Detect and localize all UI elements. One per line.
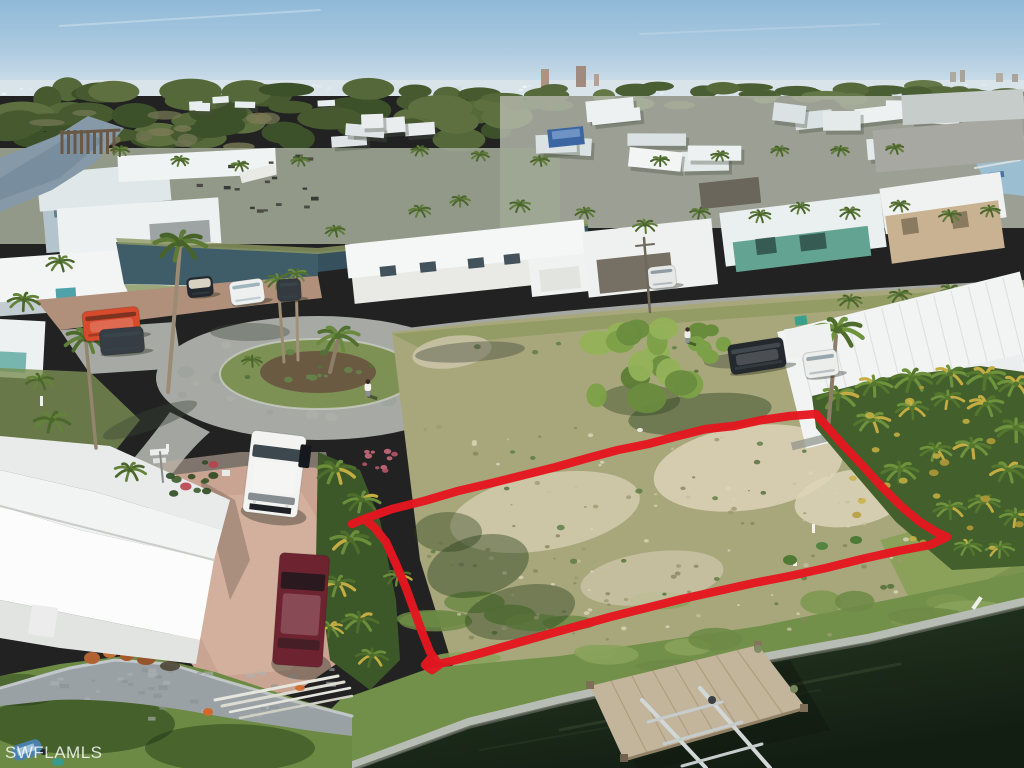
distant-tower	[576, 66, 586, 87]
white-post	[40, 396, 43, 406]
mailbox	[222, 470, 230, 476]
foreground-home-window	[468, 257, 485, 269]
distant-tower	[594, 74, 599, 86]
palm-shadow-in-lot	[414, 512, 482, 552]
dock-piling	[586, 681, 594, 689]
street-sign	[153, 458, 166, 464]
aerial-photo-canvas	[0, 0, 1024, 768]
foreground-home-garage-door	[539, 266, 581, 292]
green-tuft	[783, 555, 797, 565]
palm-shadow-road	[210, 323, 290, 341]
teal-home-window	[799, 232, 827, 251]
white-building-door	[28, 604, 58, 637]
foreground-home-window	[504, 253, 521, 265]
aerial-listing-photo: SWFLAMLS	[0, 0, 1024, 768]
distant-tower	[950, 72, 956, 82]
piling-cap	[754, 645, 762, 653]
pink-flower-bush	[362, 449, 398, 473]
teal-cart	[794, 315, 807, 326]
green-tuft	[850, 536, 862, 544]
lot-marker-stake	[812, 524, 815, 533]
mls-watermark-text: SWFLAMLS	[5, 743, 103, 763]
teal-home-window	[755, 237, 777, 255]
distant-tower	[1012, 74, 1018, 82]
gray-building	[901, 89, 1024, 125]
orange-marker	[295, 685, 305, 691]
distant-tower	[541, 69, 549, 87]
foreground-home-window	[380, 265, 397, 277]
dock-piling	[800, 704, 808, 712]
distant-tower	[960, 70, 965, 82]
white-post	[166, 444, 169, 452]
tan-home-window	[901, 217, 919, 235]
foreground-home-window	[420, 261, 437, 273]
orange-marker	[203, 708, 213, 716]
green-tuft	[816, 542, 828, 550]
distant-tower	[996, 73, 1003, 82]
lot-marker-stake	[637, 428, 643, 432]
debris	[160, 661, 180, 671]
piling-cap	[790, 685, 798, 693]
cut-log	[84, 652, 100, 664]
dock-piling	[620, 754, 628, 762]
boat-lift-motor	[708, 696, 716, 704]
